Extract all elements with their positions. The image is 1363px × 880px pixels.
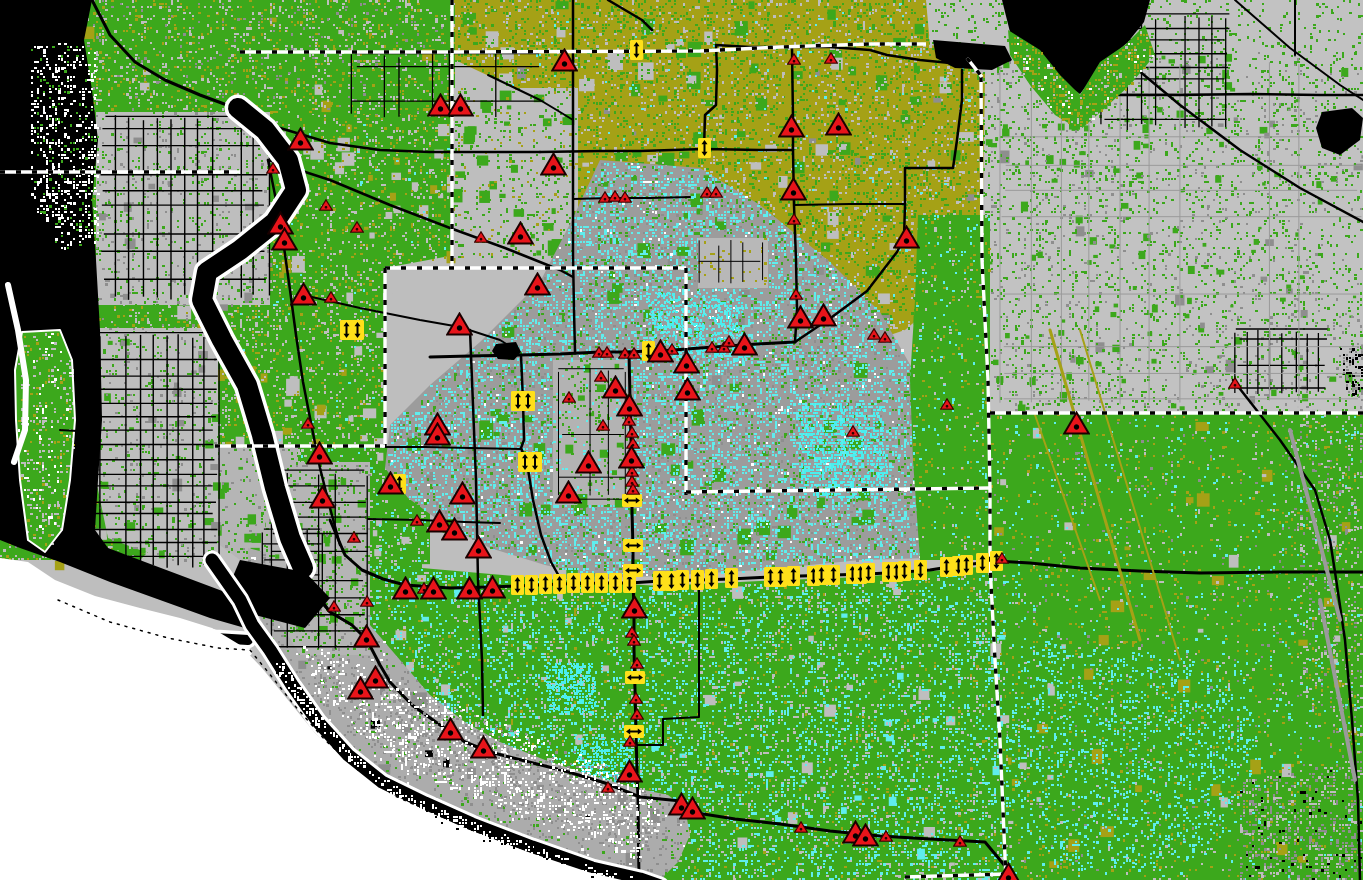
panther-mortality-marker[interactable] (674, 377, 701, 401)
panther-mortality-marker-small[interactable] (327, 600, 341, 612)
panther-mortality-marker-small[interactable] (618, 191, 632, 203)
wildlife-crossing-marker[interactable] (623, 564, 643, 577)
map-viewport[interactable] (0, 0, 1363, 880)
panther-mortality-marker-small[interactable] (627, 634, 641, 646)
panther-mortality-marker-small[interactable] (623, 735, 637, 747)
panther-mortality-marker-small[interactable] (995, 552, 1009, 564)
panther-mortality-marker-small[interactable] (630, 657, 644, 669)
panther-mortality-marker[interactable] (679, 796, 706, 820)
wildlife-crossing-marker[interactable] (630, 40, 643, 60)
wildlife-crossing-marker[interactable] (623, 539, 643, 552)
panther-mortality-marker-small[interactable] (596, 419, 610, 431)
wildlife-crossing-marker[interactable] (553, 574, 566, 594)
wildlife-crossing-marker[interactable] (976, 553, 989, 573)
wildlife-crossing-marker[interactable] (676, 570, 689, 590)
panther-mortality-marker[interactable] (447, 93, 474, 117)
panther-mortality-marker-small[interactable] (319, 199, 333, 211)
panther-mortality-marker[interactable] (647, 339, 674, 363)
panther-mortality-marker[interactable] (306, 441, 333, 465)
panther-mortality-marker[interactable] (893, 225, 920, 249)
panther-mortality-marker[interactable] (995, 862, 1022, 880)
wildlife-crossing-marker[interactable] (725, 568, 738, 588)
panther-mortality-marker[interactable] (309, 485, 336, 509)
panther-mortality-marker[interactable] (540, 152, 567, 176)
panther-mortality-marker[interactable] (810, 303, 837, 327)
panther-mortality-marker[interactable] (347, 676, 374, 700)
panther-mortality-marker-small[interactable] (824, 52, 838, 64)
wildlife-crossing-marker[interactable] (581, 573, 594, 593)
panther-mortality-marker-small[interactable] (709, 186, 723, 198)
wildlife-crossing-marker[interactable] (691, 570, 704, 590)
panther-mortality-marker-small[interactable] (474, 231, 488, 243)
panther-mortality-marker[interactable] (437, 717, 464, 741)
panther-mortality-marker[interactable] (780, 177, 807, 201)
panther-mortality-marker[interactable] (825, 112, 852, 136)
panther-mortality-marker-small[interactable] (324, 291, 338, 303)
panther-mortality-marker[interactable] (353, 624, 380, 648)
panther-mortality-marker[interactable] (778, 114, 805, 138)
panther-mortality-marker[interactable] (616, 759, 643, 783)
wildlife-crossing-marker[interactable] (914, 560, 927, 580)
panther-mortality-marker-small[interactable] (600, 346, 614, 358)
land-cover-map-canvas[interactable] (0, 0, 1363, 880)
panther-mortality-marker-small[interactable] (705, 341, 719, 353)
wildlife-crossing-marker[interactable] (539, 574, 552, 594)
wildlife-crossing-marker[interactable] (787, 566, 800, 586)
panther-mortality-marker[interactable] (470, 735, 497, 759)
panther-mortality-marker-small[interactable] (562, 391, 576, 403)
panther-mortality-marker-small[interactable] (878, 331, 892, 343)
wildlife-crossing-marker[interactable] (351, 320, 364, 340)
panther-mortality-marker-small[interactable] (794, 821, 808, 833)
panther-mortality-marker[interactable] (271, 227, 298, 251)
panther-mortality-marker-small[interactable] (1228, 377, 1242, 389)
panther-mortality-marker-small[interactable] (787, 213, 801, 225)
wildlife-crossing-marker[interactable] (774, 567, 787, 587)
panther-mortality-marker-small[interactable] (629, 692, 643, 704)
panther-mortality-marker[interactable] (446, 312, 473, 336)
panther-mortality-marker[interactable] (524, 272, 551, 296)
panther-mortality-marker[interactable] (616, 393, 643, 417)
panther-mortality-marker[interactable] (575, 450, 602, 474)
panther-mortality-marker[interactable] (731, 332, 758, 356)
panther-mortality-marker[interactable] (673, 350, 700, 374)
wildlife-crossing-marker[interactable] (622, 494, 642, 507)
wildlife-crossing-marker-double[interactable] (511, 391, 535, 411)
panther-mortality-marker-small[interactable] (953, 835, 967, 847)
wildlife-crossing-marker[interactable] (827, 565, 840, 585)
panther-mortality-marker[interactable] (1063, 411, 1090, 435)
panther-mortality-marker[interactable] (465, 535, 492, 559)
panther-mortality-marker-small[interactable] (787, 53, 801, 65)
panther-mortality-marker-small[interactable] (301, 417, 315, 429)
panther-mortality-marker[interactable] (424, 422, 451, 446)
panther-mortality-marker[interactable] (852, 823, 879, 847)
panther-mortality-marker-small[interactable] (266, 162, 280, 174)
panther-mortality-marker[interactable] (449, 481, 476, 505)
panther-mortality-marker-small[interactable] (410, 514, 424, 526)
panther-mortality-marker[interactable] (618, 445, 645, 469)
panther-mortality-marker-small[interactable] (789, 288, 803, 300)
wildlife-crossing-marker-double[interactable] (518, 452, 542, 472)
panther-mortality-marker[interactable] (420, 576, 447, 600)
panther-mortality-marker-small[interactable] (347, 531, 361, 543)
wildlife-crossing-marker[interactable] (705, 569, 718, 589)
wildlife-crossing-marker[interactable] (862, 563, 875, 583)
panther-mortality-marker-small[interactable] (360, 595, 374, 607)
wildlife-crossing-marker[interactable] (567, 573, 580, 593)
wildlife-crossing-marker[interactable] (625, 671, 645, 684)
panther-mortality-marker[interactable] (551, 48, 578, 72)
panther-mortality-marker-small[interactable] (630, 708, 644, 720)
panther-mortality-marker[interactable] (377, 471, 404, 495)
panther-mortality-marker[interactable] (555, 480, 582, 504)
panther-mortality-marker[interactable] (621, 595, 648, 619)
wildlife-crossing-marker[interactable] (609, 573, 622, 593)
panther-mortality-marker[interactable] (507, 221, 534, 245)
panther-mortality-marker-small[interactable] (626, 483, 640, 495)
wildlife-crossing-marker[interactable] (698, 138, 711, 158)
panther-mortality-marker-small[interactable] (879, 830, 893, 842)
panther-mortality-marker-small[interactable] (627, 347, 641, 359)
panther-mortality-marker[interactable] (441, 517, 468, 541)
panther-mortality-marker[interactable] (392, 576, 419, 600)
panther-mortality-marker-small[interactable] (350, 221, 364, 233)
wildlife-crossing-marker[interactable] (960, 555, 973, 575)
panther-mortality-marker[interactable] (290, 282, 317, 306)
panther-mortality-marker[interactable] (479, 575, 506, 599)
panther-mortality-marker-small[interactable] (940, 398, 954, 410)
panther-mortality-marker-small[interactable] (601, 781, 615, 793)
wildlife-crossing-marker[interactable] (595, 573, 608, 593)
wildlife-crossing-marker[interactable] (511, 575, 524, 595)
panther-mortality-marker-small[interactable] (846, 425, 860, 437)
wildlife-crossing-marker[interactable] (898, 561, 911, 581)
panther-mortality-marker[interactable] (287, 127, 314, 151)
wildlife-crossing-marker[interactable] (525, 575, 538, 595)
